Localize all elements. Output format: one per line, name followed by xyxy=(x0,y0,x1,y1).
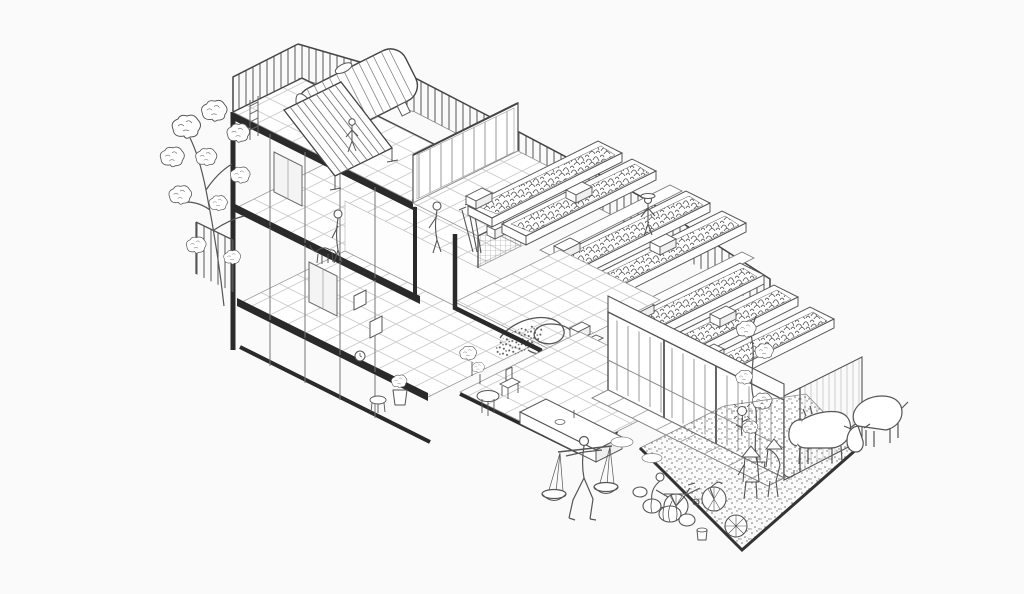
sun-hat xyxy=(641,194,655,199)
bucket xyxy=(697,528,707,540)
illustration-stage xyxy=(0,0,1024,594)
stone-slab xyxy=(611,437,633,447)
stone-slab xyxy=(642,454,662,463)
stool xyxy=(370,396,386,404)
